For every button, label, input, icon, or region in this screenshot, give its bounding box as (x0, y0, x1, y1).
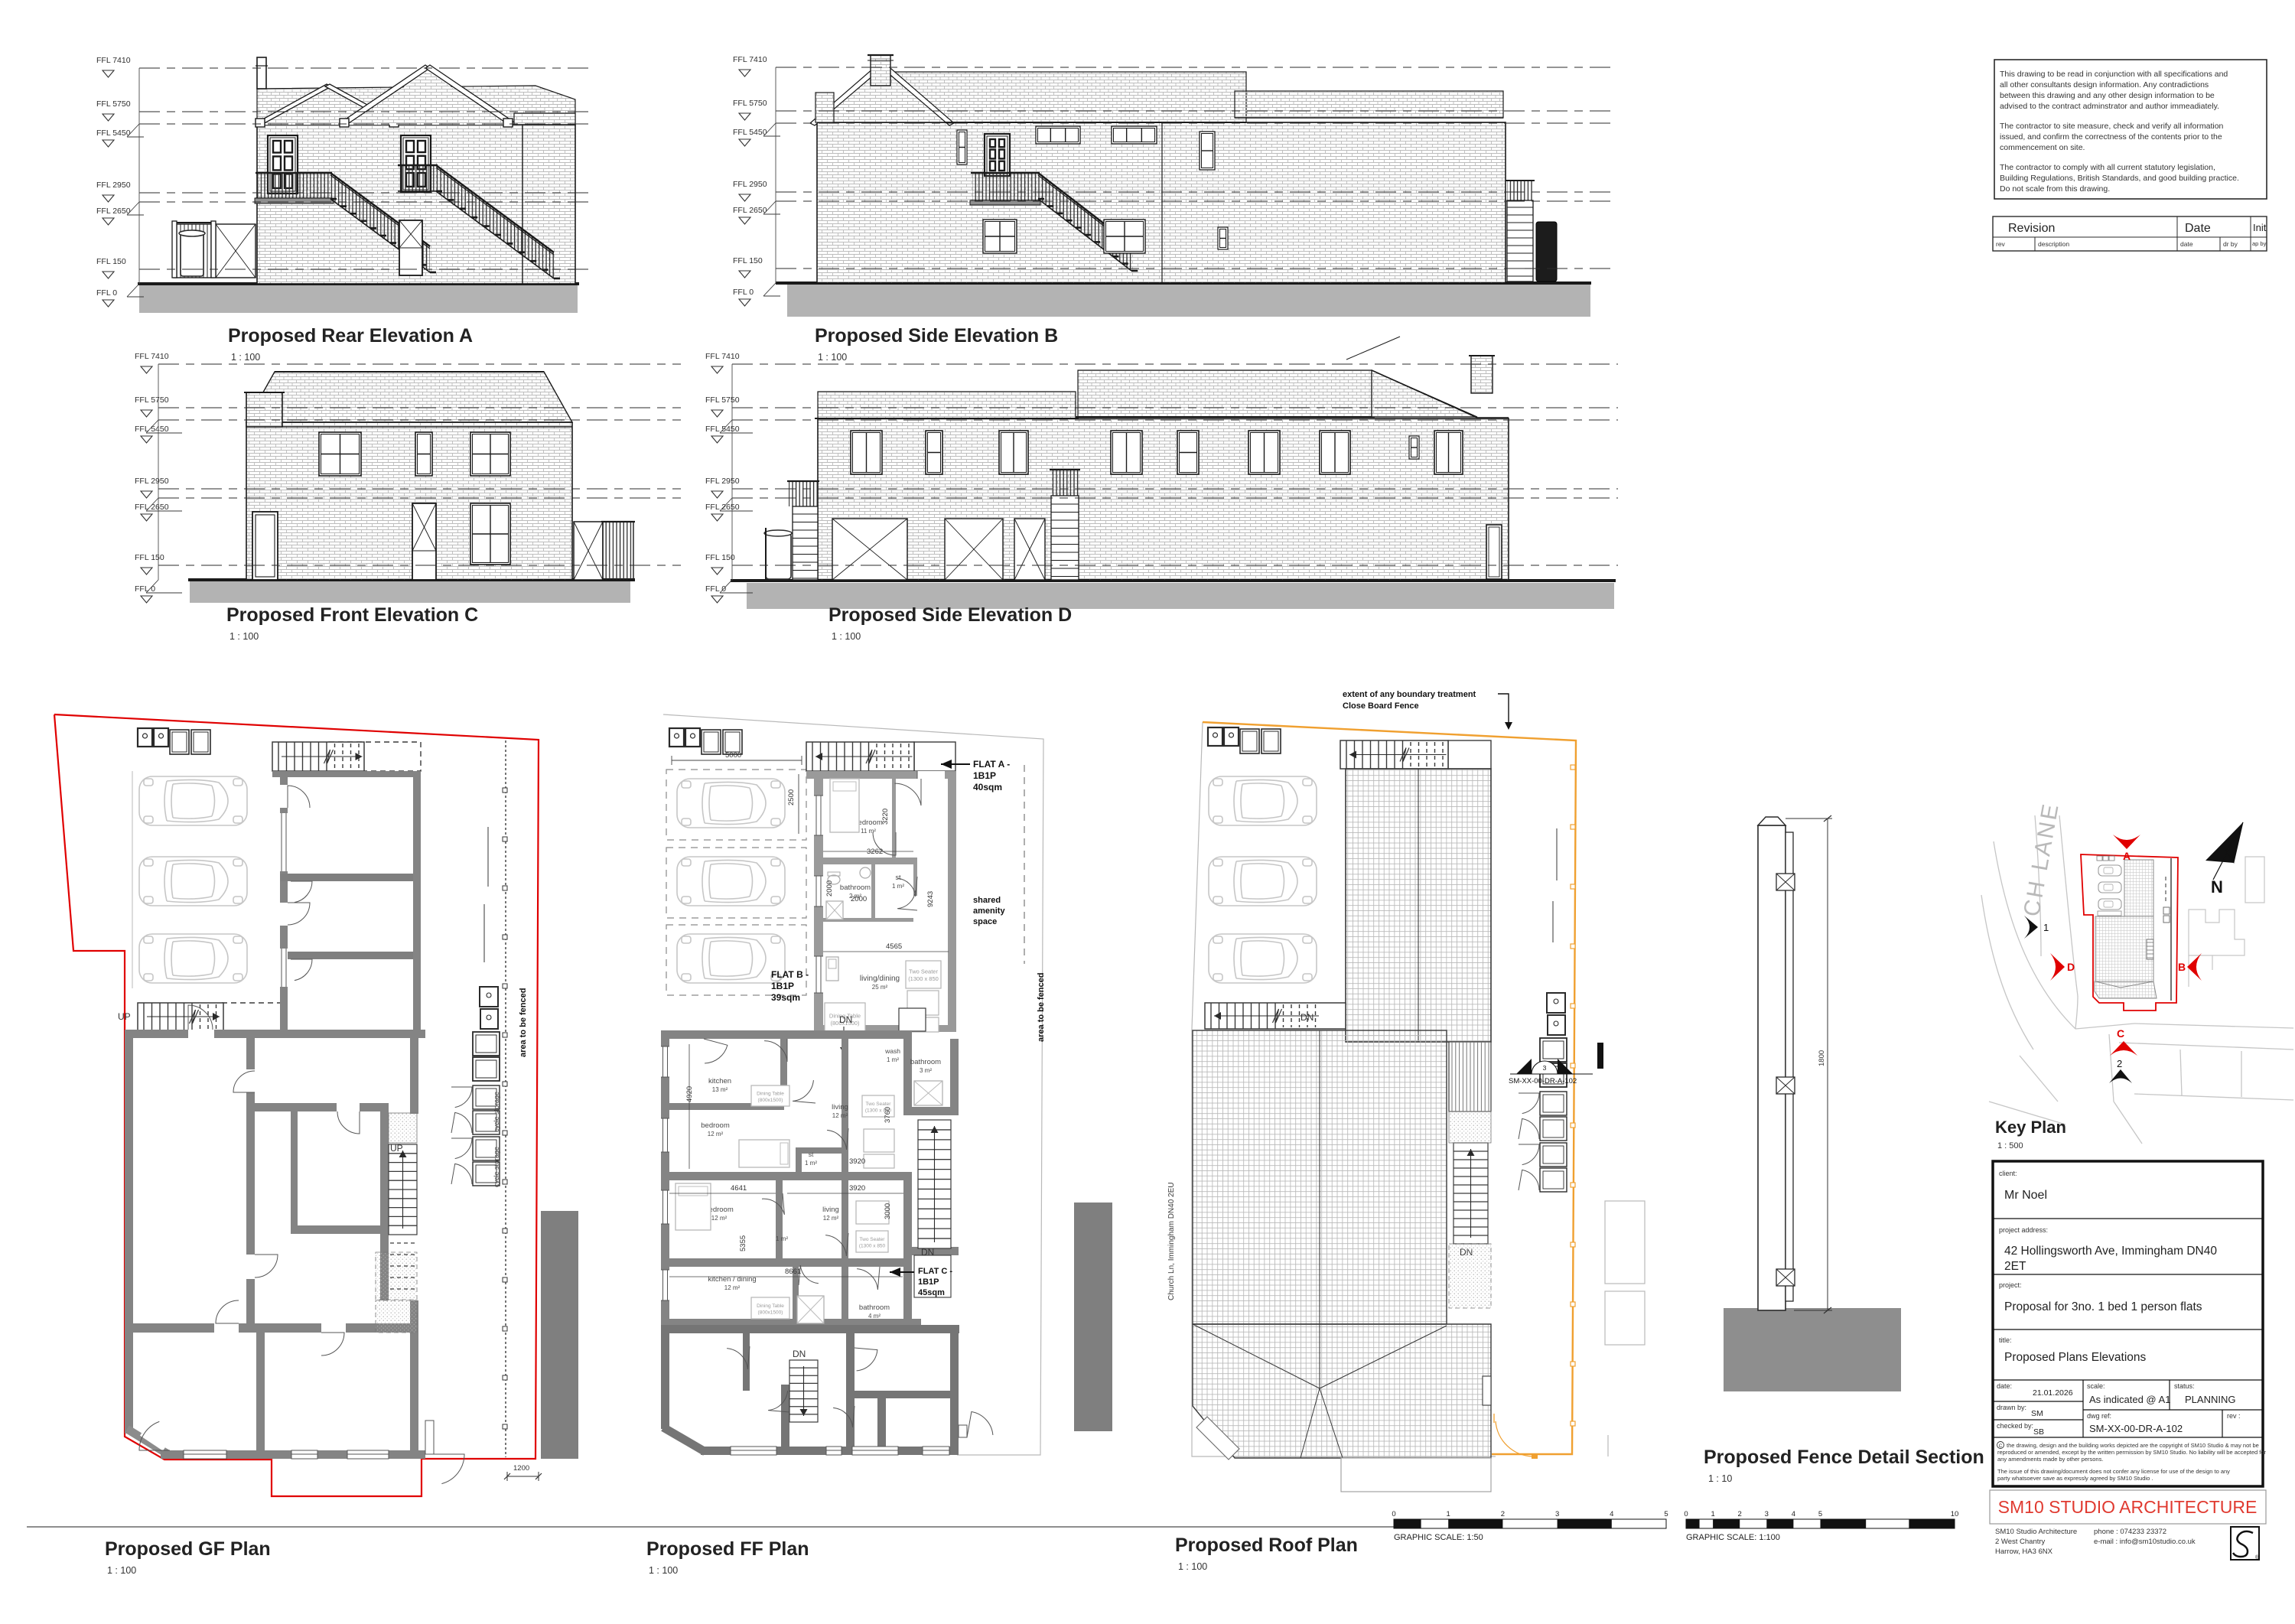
svg-text:shared: shared (973, 896, 1001, 905)
svg-text:®: ® (2255, 1554, 2260, 1561)
svg-text:FFL 7410: FFL 7410 (733, 55, 767, 64)
svg-text:area to be fenced: area to be fenced (1037, 973, 1046, 1042)
svg-text:the drawing, design and the bu: the drawing, design and the building wor… (2007, 1442, 2259, 1449)
svg-text:Proposed Rear Elevation A: Proposed Rear Elevation A (228, 325, 473, 347)
svg-text:3262: 3262 (867, 848, 883, 856)
svg-text:checked by:: checked by: (1997, 1422, 2033, 1430)
svg-text:GRAPHIC SCALE: 1:50: GRAPHIC SCALE: 1:50 (1394, 1533, 1483, 1542)
svg-text:rev: rev (1996, 240, 2006, 248)
svg-text:5: 5 (1818, 1510, 1822, 1518)
svg-text:1 : 100: 1 : 100 (649, 1565, 678, 1576)
svg-text:4641: 4641 (731, 1184, 747, 1193)
svg-text:1 : 100: 1 : 100 (818, 352, 847, 363)
svg-text:9243: 9243 (926, 891, 935, 907)
svg-text:issued, and confirm the correc: issued, and confirm the correctness of t… (2000, 132, 2222, 142)
svg-text:FFL 5450: FFL 5450 (733, 128, 767, 137)
svg-text:Proposed Side Elevation D: Proposed Side Elevation D (828, 604, 1072, 626)
svg-text:1 m²: 1 m² (776, 1235, 788, 1242)
svg-text:FFL 2650: FFL 2650 (705, 503, 740, 512)
svg-text:1: 1 (2043, 922, 2049, 933)
svg-text:Proposed Side Elevation B: Proposed Side Elevation B (815, 325, 1058, 347)
svg-text:3: 3 (1543, 1064, 1547, 1072)
svg-text:1B1P: 1B1P (771, 981, 794, 991)
svg-text:space: space (973, 917, 997, 926)
svg-text:Church Ln, Immingham DN40 2EU: Church Ln, Immingham DN40 2EU (1167, 1182, 1176, 1300)
svg-text:FFL 5450: FFL 5450 (705, 425, 740, 434)
svg-text:dwg ref:: dwg ref: (2087, 1412, 2111, 1420)
svg-text:C: C (1999, 1443, 2003, 1449)
svg-text:title:: title: (1999, 1336, 2012, 1344)
svg-text:FFL 2650: FFL 2650 (135, 503, 169, 512)
svg-text:SM10 STUDIO ARCHITECTURE: SM10 STUDIO ARCHITECTURE (1998, 1497, 2258, 1517)
svg-text:date:: date: (1997, 1382, 2012, 1390)
svg-text:extent of any boundary treatme: extent of any boundary treatment (1343, 690, 1476, 699)
svg-text:(1300 x 850: (1300 x 850 (908, 975, 939, 982)
svg-text:FFL 2950: FFL 2950 (135, 477, 169, 486)
svg-text:DN: DN (793, 1349, 806, 1359)
svg-text:1 m²: 1 m² (805, 1160, 817, 1167)
svg-text:2000: 2000 (851, 895, 867, 903)
svg-text:12 m²: 12 m² (724, 1284, 741, 1291)
svg-text:bathroom: bathroom (840, 884, 871, 892)
svg-text:1 m²: 1 m² (887, 1056, 899, 1063)
svg-text:FFL 5750: FFL 5750 (135, 395, 169, 405)
svg-text:39sqm: 39sqm (771, 992, 800, 1003)
svg-text:PLANNING: PLANNING (2185, 1394, 2235, 1405)
svg-text:B: B (2178, 961, 2186, 973)
svg-text:Two Seater: Two Seater (866, 1102, 892, 1107)
svg-text:FFL 2950: FFL 2950 (96, 181, 131, 190)
svg-text:rev :: rev : (2227, 1412, 2241, 1420)
svg-text:3920: 3920 (849, 1184, 865, 1193)
svg-text:wash: wash (884, 1047, 900, 1055)
svg-text:5000: 5000 (725, 751, 741, 760)
svg-text:4: 4 (1792, 1510, 1795, 1518)
svg-text:client:: client: (1999, 1170, 2017, 1177)
svg-text:scale:: scale: (2087, 1382, 2105, 1390)
svg-text:FFL 7410: FFL 7410 (705, 352, 740, 361)
svg-text:cycle storage: cycle storage (493, 1092, 500, 1132)
svg-text:Proposed Fence Detail Section: Proposed Fence Detail Section (1704, 1447, 1984, 1468)
svg-text:Dining Table: Dining Table (757, 1303, 784, 1309)
svg-text:date: date (2180, 240, 2193, 248)
svg-text:3 m²: 3 m² (920, 1067, 932, 1074)
svg-text:cycle storage: cycle storage (493, 1147, 500, 1187)
svg-text:project address:: project address: (1999, 1226, 2048, 1234)
svg-text:FFL 5450: FFL 5450 (96, 129, 131, 138)
svg-text:FFL 150: FFL 150 (96, 257, 126, 266)
svg-text:2500: 2500 (787, 789, 796, 805)
svg-text:A: A (2123, 850, 2131, 862)
svg-text:11 m²: 11 m² (861, 828, 876, 835)
svg-text:3: 3 (1765, 1510, 1769, 1518)
svg-text:2000: 2000 (825, 880, 834, 897)
svg-text:FFL 150: FFL 150 (733, 256, 763, 265)
svg-text:2: 2 (1501, 1510, 1505, 1518)
svg-text:Proposed FF Plan: Proposed FF Plan (646, 1538, 809, 1560)
svg-text:0: 0 (1684, 1510, 1688, 1518)
svg-text:Mr Noel: Mr Noel (2004, 1189, 2047, 1202)
svg-text:4920: 4920 (685, 1086, 694, 1102)
svg-text:living: living (832, 1103, 848, 1111)
svg-text:Proposed Roof Plan: Proposed Roof Plan (1175, 1535, 1358, 1556)
svg-text:1 : 100: 1 : 100 (231, 352, 260, 363)
svg-text:FFL 0: FFL 0 (96, 288, 117, 298)
svg-text:1 : 100: 1 : 100 (107, 1565, 136, 1576)
svg-text:3220: 3220 (881, 809, 890, 825)
svg-text:12 m²: 12 m² (711, 1215, 728, 1222)
svg-text:0: 0 (1392, 1510, 1395, 1518)
svg-text:advised to the contract admins: advised to the contract adminstrator and… (2000, 102, 2219, 111)
svg-text:living/dining: living/dining (860, 975, 900, 983)
svg-text:4565: 4565 (886, 942, 902, 951)
svg-text:The contractor to site measure: The contractor to site measure, check an… (2000, 122, 2224, 131)
svg-text:1B1P: 1B1P (918, 1277, 939, 1287)
svg-text:Key Plan: Key Plan (1995, 1118, 2066, 1137)
svg-text:FLAT A -: FLAT A - (973, 759, 1010, 770)
svg-text:Init: Init (2253, 222, 2267, 233)
svg-text:SM-XX-00-DR-A-102: SM-XX-00-DR-A-102 (2089, 1423, 2183, 1434)
svg-text:2: 2 (2117, 1058, 2122, 1069)
svg-text:status:: status: (2174, 1382, 2195, 1390)
svg-text:Proposed GF Plan: Proposed GF Plan (105, 1538, 271, 1560)
svg-text:bedroom: bedroom (701, 1121, 730, 1130)
svg-text:commencement on site.: commencement on site. (2000, 143, 2085, 152)
svg-text:SM-XX-00-DR-A-102: SM-XX-00-DR-A-102 (1509, 1077, 1577, 1085)
svg-text:5355: 5355 (739, 1235, 747, 1251)
svg-text:Proposal for 3no. 1 bed 1 pers: Proposal for 3no. 1 bed 1 person flats (2004, 1300, 2202, 1313)
svg-text:phone : 074233 23372: phone : 074233 23372 (2094, 1528, 2166, 1536)
svg-text:(800x1500): (800x1500) (758, 1310, 783, 1315)
svg-text:bathroom: bathroom (859, 1303, 890, 1312)
svg-text:40sqm: 40sqm (973, 782, 1002, 792)
svg-text:dr by: dr by (2223, 240, 2238, 248)
svg-text:area to be fenced: area to be fenced (519, 988, 528, 1057)
svg-text:FFL 150: FFL 150 (135, 553, 164, 562)
svg-text:(800x1500): (800x1500) (758, 1098, 783, 1103)
svg-text:4: 4 (1610, 1510, 1613, 1518)
svg-text:1: 1 (1447, 1510, 1450, 1518)
svg-text:FFL 5750: FFL 5750 (705, 395, 740, 405)
svg-text:Do not scale from this drawing: Do not scale from this drawing. (2000, 184, 2110, 194)
svg-text:1 : 100: 1 : 100 (832, 631, 861, 642)
svg-text:bathroom: bathroom (910, 1058, 941, 1066)
svg-text:SM: SM (2031, 1409, 2043, 1418)
svg-text:FFL 5750: FFL 5750 (733, 99, 767, 108)
svg-text:Harrow, HA3 6NX: Harrow, HA3 6NX (1995, 1548, 2053, 1556)
svg-text:3: 3 (1555, 1510, 1559, 1518)
svg-text:25 m²: 25 m² (872, 984, 888, 991)
svg-text:FFL 0: FFL 0 (733, 288, 754, 297)
svg-text:amenity: amenity (973, 906, 1005, 916)
svg-text:FFL 7410: FFL 7410 (96, 56, 131, 65)
svg-text:10: 10 (1951, 1510, 1959, 1518)
svg-text:1 : 10: 1 : 10 (1708, 1473, 1732, 1484)
svg-text:st: st (809, 1150, 814, 1158)
svg-text:1200: 1200 (513, 1464, 529, 1473)
svg-text:UP: UP (118, 1011, 131, 1022)
svg-text:(1300 x 850: (1300 x 850 (859, 1243, 886, 1248)
svg-text:Two Seater: Two Seater (909, 968, 938, 975)
svg-text:12 m²: 12 m² (823, 1215, 839, 1222)
svg-text:FFL 2950: FFL 2950 (733, 180, 767, 189)
svg-text:FLAT C -: FLAT C - (918, 1267, 952, 1276)
svg-text:FFL 5750: FFL 5750 (96, 99, 131, 109)
svg-text:1B1P: 1B1P (973, 770, 996, 781)
svg-text:DN: DN (839, 1014, 852, 1025)
svg-text:3920: 3920 (849, 1157, 865, 1166)
svg-text:description: description (2038, 240, 2069, 248)
svg-text:UP: UP (390, 1143, 403, 1154)
svg-text:FFL 2650: FFL 2650 (733, 206, 767, 215)
svg-text:living: living (822, 1206, 839, 1214)
svg-text:12 m²: 12 m² (708, 1131, 724, 1137)
svg-text:Two Seater: Two Seater (860, 1237, 886, 1242)
svg-text:D: D (2067, 961, 2075, 973)
svg-text:FFL 2650: FFL 2650 (96, 207, 131, 216)
svg-text:The issue of this drawing/docu: The issue of this drawing/document does … (1997, 1468, 2230, 1475)
svg-text:SB: SB (2033, 1427, 2044, 1437)
svg-text:Close Board Fence: Close Board Fence (1343, 701, 1419, 711)
svg-text:FFL 150: FFL 150 (705, 553, 735, 562)
svg-text:The contractor to comply with: The contractor to comply with all curren… (2000, 163, 2215, 172)
svg-text:3000: 3000 (884, 1203, 892, 1219)
svg-text:5: 5 (1664, 1510, 1668, 1518)
svg-text:3760: 3760 (884, 1107, 892, 1123)
svg-text:1800: 1800 (1818, 1050, 1826, 1066)
svg-text:Date: Date (2185, 222, 2211, 235)
svg-text:Revision: Revision (2008, 222, 2055, 235)
svg-text:Proposed Front Elevation C: Proposed Front Elevation C (226, 604, 478, 626)
svg-text:FFL 5450: FFL 5450 (135, 425, 169, 434)
svg-text:C: C (2117, 1027, 2124, 1040)
svg-text:kitchen: kitchen (708, 1077, 731, 1085)
svg-text:FLAT B -: FLAT B - (771, 969, 809, 980)
svg-text:N: N (2211, 877, 2223, 897)
svg-text:As indicated @ A1: As indicated @ A1 (2089, 1394, 2170, 1405)
svg-text:42 Hollingsworth Ave, Immingha: 42 Hollingsworth Ave, Immingham DN40 (2004, 1245, 2217, 1258)
svg-text:all other consultants design i: all other consultants design information… (2000, 80, 2209, 89)
svg-text:ap by: ap by (2252, 240, 2267, 247)
svg-text:DN: DN (1300, 1012, 1314, 1023)
svg-text:reproduced or amended, except: reproduced or amended, except by the wri… (1997, 1449, 2267, 1456)
svg-text:1 : 100: 1 : 100 (1178, 1561, 1207, 1572)
svg-text:st: st (895, 874, 901, 881)
svg-text:project:: project: (1999, 1281, 2022, 1289)
svg-text:Dining Table: Dining Table (757, 1091, 784, 1096)
svg-text:Proposed Plans Elevations: Proposed Plans Elevations (2004, 1351, 2147, 1364)
svg-text:between this drawing and any o: between this drawing and any other desig… (2000, 91, 2215, 100)
svg-text:party whatsoever save as expre: party whatsoever save as expressly agree… (1997, 1475, 2153, 1482)
svg-text:1 : 100: 1 : 100 (229, 631, 259, 642)
svg-text:GRAPHIC SCALE: 1:100: GRAPHIC SCALE: 1:100 (1686, 1533, 1780, 1542)
svg-text:e-mail : info@sm10studio.co.: e-mail : info@sm10studio.co.uk (2094, 1538, 2196, 1546)
svg-text:FFL 7410: FFL 7410 (135, 352, 169, 361)
svg-text:1 m²: 1 m² (892, 883, 904, 890)
svg-text:SM10 Studio Architecture: SM10 Studio Architecture (1995, 1528, 2077, 1536)
svg-text:1: 1 (1711, 1510, 1714, 1518)
svg-text:2ET: 2ET (2004, 1260, 2026, 1273)
svg-text:8661: 8661 (785, 1268, 801, 1276)
svg-text:2: 2 (1738, 1510, 1742, 1518)
svg-text:Building Regulations, British: Building Regulations, British Standards,… (2000, 174, 2239, 183)
svg-text:FFL 2950: FFL 2950 (705, 477, 740, 486)
svg-text:any amendments made by other p: any amendments made by other persons. (1997, 1456, 2103, 1463)
svg-text:4 m²: 4 m² (868, 1313, 881, 1320)
svg-text:1 : 500: 1 : 500 (1997, 1141, 2023, 1150)
svg-text:This drawing to be read in con: This drawing to be read in conjunction w… (2000, 70, 2228, 79)
svg-text:drawn by:: drawn by: (1997, 1404, 2026, 1411)
svg-text:2 West Chantry: 2 West Chantry (1995, 1538, 2046, 1546)
svg-text:45sqm: 45sqm (918, 1288, 945, 1297)
svg-text:13 m²: 13 m² (712, 1086, 728, 1093)
svg-text:21.01.2026: 21.01.2026 (2033, 1388, 2073, 1398)
svg-text:12 m²: 12 m² (832, 1112, 848, 1119)
